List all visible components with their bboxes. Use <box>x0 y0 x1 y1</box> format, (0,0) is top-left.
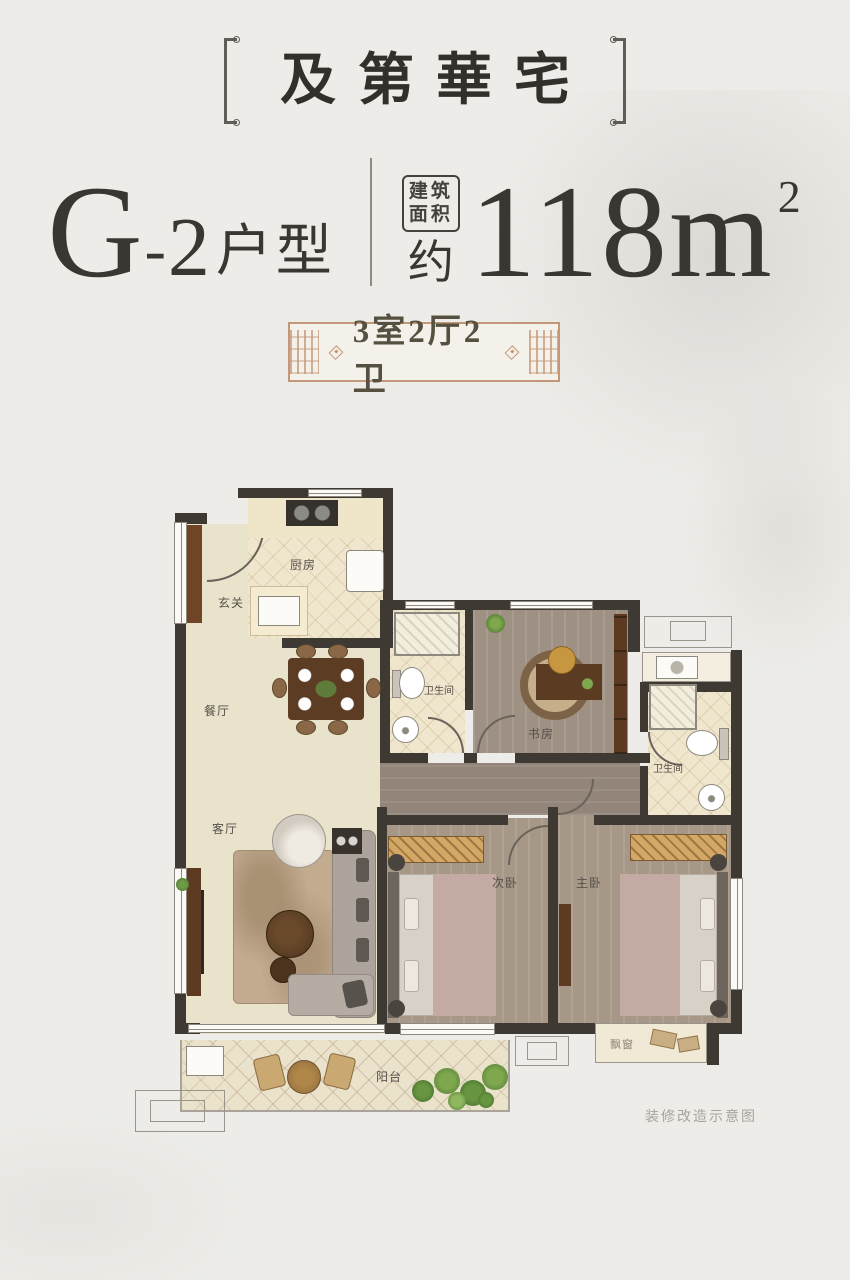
headboard <box>717 872 728 1018</box>
plant <box>176 878 189 891</box>
area-approx: 约 <box>408 240 454 286</box>
plant <box>412 1080 434 1102</box>
plant <box>482 1064 508 1090</box>
wall <box>380 815 508 825</box>
ac-unit <box>150 1100 205 1122</box>
wash-basin <box>392 716 419 743</box>
wall <box>640 766 648 815</box>
toilet <box>686 730 718 756</box>
wash-basin <box>698 784 725 811</box>
area-stamp-line2: 面积 <box>409 204 453 225</box>
window <box>308 489 362 497</box>
page-title: 及第華宅 <box>258 38 592 124</box>
room-label-living: 客厅 <box>212 820 238 837</box>
bed <box>616 872 728 1018</box>
nightstand <box>710 854 727 871</box>
window <box>510 601 593 609</box>
stove <box>286 500 338 526</box>
tv-cabinet <box>187 868 201 996</box>
pillow <box>700 898 715 930</box>
plan-caption: 装修改造示意图 <box>645 1106 757 1126</box>
nightstand <box>388 854 405 871</box>
room-label-balcony: 阳台 <box>376 1068 402 1085</box>
plant <box>486 614 505 633</box>
ac-unit <box>527 1042 557 1060</box>
nightstand <box>710 1000 727 1017</box>
area-stamp-column: 建筑 面积 约 <box>402 175 460 287</box>
tv-screen <box>201 890 204 974</box>
hallway-floor <box>380 763 640 815</box>
sofa-pillow <box>356 898 369 922</box>
window <box>405 601 455 609</box>
badge-ornament-right-icon <box>505 345 520 360</box>
unit-letter: G <box>47 178 142 286</box>
room-label-entry: 玄关 <box>218 594 244 611</box>
window <box>730 878 743 990</box>
room-label-kitchen: 厨房 <box>290 556 316 573</box>
wall <box>707 1023 719 1065</box>
room-label-bedroom2: 次卧 <box>492 874 518 891</box>
wall <box>465 610 473 710</box>
wall <box>377 807 387 1033</box>
bed <box>388 872 498 1018</box>
plant <box>448 1092 466 1110</box>
unit-dash: - <box>143 218 168 286</box>
toilet-tank <box>719 728 729 760</box>
dining-chair <box>366 678 381 698</box>
wall <box>594 815 640 825</box>
area-stamp-line1: 建筑 <box>409 181 453 202</box>
area-value: 118m <box>470 178 774 286</box>
balcony-sliding-door <box>188 1024 385 1033</box>
balcony-cabinet <box>186 1046 224 1076</box>
dining-chair <box>328 644 348 659</box>
headboard <box>388 872 399 1018</box>
study-cabinet <box>614 614 627 754</box>
room-label-bath1: 卫生间 <box>424 682 454 697</box>
coffee-table <box>266 910 314 958</box>
dresser <box>559 904 571 986</box>
pillow <box>700 960 715 992</box>
wall <box>385 1023 400 1034</box>
blanket <box>620 874 680 1016</box>
shower <box>394 612 460 656</box>
unit-suffix: 户型 <box>210 224 336 286</box>
nightstand <box>388 1000 405 1017</box>
dining-chair <box>328 720 348 735</box>
sofa-pillow <box>356 858 369 882</box>
plant <box>434 1068 460 1094</box>
area-exponent: 2 <box>774 174 803 220</box>
floor-plan: 玄关 厨房 餐厅 客厅 卫生间 书房 卫生间 次卧 主卧 阳台 飘窗 <box>130 470 765 1160</box>
washing-machine <box>656 656 698 679</box>
room-label-dining: 餐厅 <box>204 702 230 719</box>
wall <box>380 753 428 763</box>
badge-lattice-right-icon <box>529 330 558 374</box>
toilet <box>399 667 425 699</box>
pillow <box>404 898 419 930</box>
dining-chair <box>296 644 316 659</box>
blanket <box>433 874 496 1016</box>
window <box>174 522 187 624</box>
room-label-study: 书房 <box>528 725 554 742</box>
wall <box>628 610 640 652</box>
badge-lattice-left-icon <box>290 330 319 374</box>
pillow <box>404 960 419 992</box>
title-block: 及第華宅 <box>0 38 850 124</box>
unit-info-row: G - 2 户型 建筑 面积 约 118m 2 <box>0 158 850 286</box>
sofa-pillow <box>356 938 369 962</box>
kitchen-sink <box>258 596 300 626</box>
wall <box>640 815 742 825</box>
balcony-table <box>287 1060 321 1094</box>
poster-page: { "header": { "title": "及第華宅", "unit_mai… <box>0 0 850 1275</box>
layout-badge: 3室2厅2卫 <box>288 322 560 382</box>
shower <box>649 684 697 730</box>
dining-chair <box>272 678 287 698</box>
room-label-bay-window: 飘窗 <box>610 1036 634 1052</box>
sofa-side-table <box>332 828 362 854</box>
wall <box>464 753 477 763</box>
dining-table <box>288 658 364 720</box>
title-bracket-left-icon <box>224 38 238 124</box>
window <box>400 1023 495 1035</box>
plant <box>478 1092 494 1108</box>
wall <box>495 1023 597 1034</box>
badge-label: 3室2厅2卫 <box>353 304 495 400</box>
room-label-master: 主卧 <box>576 874 602 891</box>
fridge <box>346 550 384 592</box>
desk-chair <box>548 646 576 674</box>
badge-ornament-left-icon <box>329 345 344 360</box>
unit-number: 2 <box>168 210 210 286</box>
area-stamp: 建筑 面积 <box>402 175 460 233</box>
title-bracket-right-icon <box>612 38 626 124</box>
wall <box>548 807 558 1033</box>
wall <box>640 682 648 732</box>
ac-unit <box>670 621 706 641</box>
wall <box>380 610 390 753</box>
header-divider <box>370 158 372 286</box>
room-label-bath2: 卫生间 <box>653 760 683 775</box>
armchair <box>272 814 326 868</box>
dining-chair <box>296 720 316 735</box>
wall <box>515 753 650 763</box>
shoe-cabinet <box>187 525 202 623</box>
